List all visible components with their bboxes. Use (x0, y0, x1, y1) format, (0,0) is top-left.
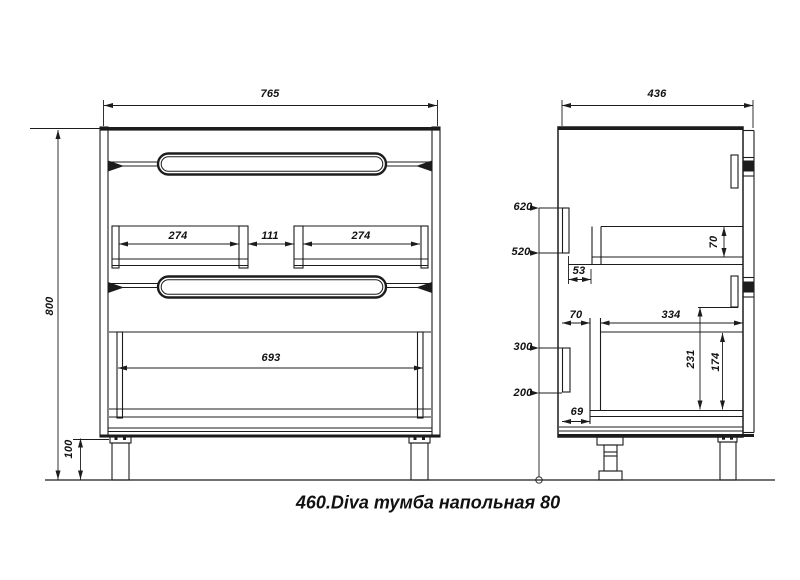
dim-height-620: 620 (514, 201, 533, 213)
bottom-drawer-handle (108, 277, 432, 298)
top-drawer-handle (108, 154, 432, 175)
dim-left-drawer-width: 274 (169, 230, 188, 242)
bottom-handle-section (744, 282, 755, 293)
side-cabinet-body (558, 127, 754, 437)
side-dimension-lines (530, 100, 753, 483)
drawer-slide-rails (563, 208, 571, 392)
bottom-drawer-inner-box (109, 332, 431, 418)
side-view (530, 100, 754, 483)
dim-back-gap-53: 53 (573, 265, 586, 277)
dim-top-drawer-inner-height: 70 (708, 236, 720, 249)
dim-bottom-drawer-width: 693 (262, 352, 281, 364)
side-countertop-edge (558, 127, 743, 130)
top-handle-section (744, 161, 755, 172)
front-view (30, 100, 440, 480)
dim-front-height: 800 (44, 297, 56, 316)
dim-height-520: 520 (512, 246, 531, 258)
side-bottom-panel (558, 427, 754, 437)
dim-right-drawer-width: 274 (352, 230, 371, 242)
dim-back-gap-70: 70 (570, 309, 583, 321)
dim-center-gap: 111 (261, 230, 278, 242)
side-legs (597, 437, 737, 480)
side-bottom-drawer-box (590, 276, 743, 424)
dim-drawer-depth-334: 334 (662, 309, 681, 321)
dim-front-leg-height: 100 (63, 440, 75, 459)
dim-height-300: 300 (514, 341, 533, 353)
dim-side-depth: 436 (648, 88, 667, 100)
dim-inner-height-174: 174 (710, 353, 722, 372)
dim-height-200: 200 (514, 387, 533, 399)
dim-front-width: 765 (261, 88, 280, 100)
drawing-title: 460.Diva тумба напольная 80 (296, 493, 560, 514)
dim-inner-height-231: 231 (685, 350, 697, 369)
dim-back-gap-69: 69 (571, 406, 584, 418)
front-countertop-edge (100, 127, 440, 131)
front-legs (110, 437, 430, 480)
drawing-sheet: 765 800 100 274 111 274 693 436 620 520 … (0, 0, 800, 580)
